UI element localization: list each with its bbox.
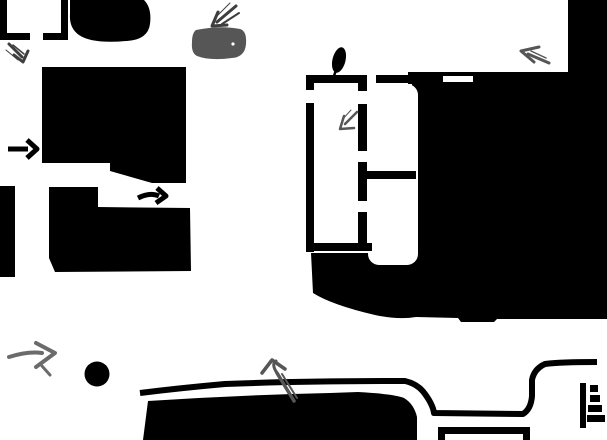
wall-mid-1: [358, 75, 367, 91]
edge-strip-left: [0, 186, 15, 277]
wall-divider-right: [365, 171, 416, 179]
wall-bottom: [306, 243, 372, 251]
mass-right-notch: [443, 76, 473, 82]
wall-mid-3: [358, 162, 367, 201]
circle-marker: [85, 362, 110, 387]
gray-blob-marker: [192, 27, 246, 59]
map-canvas: [0, 0, 607, 440]
map-svg: [0, 0, 607, 440]
wall-mid-2: [358, 104, 367, 151]
wall-left-lower: [306, 103, 314, 252]
wall-top-2: [376, 75, 413, 83]
mass-bottom: [143, 392, 417, 440]
mass-right-bulge: [408, 72, 443, 84]
blob-top: [70, 0, 150, 42]
wall-top-1: [306, 75, 367, 83]
wall-left-upper: [306, 75, 314, 90]
